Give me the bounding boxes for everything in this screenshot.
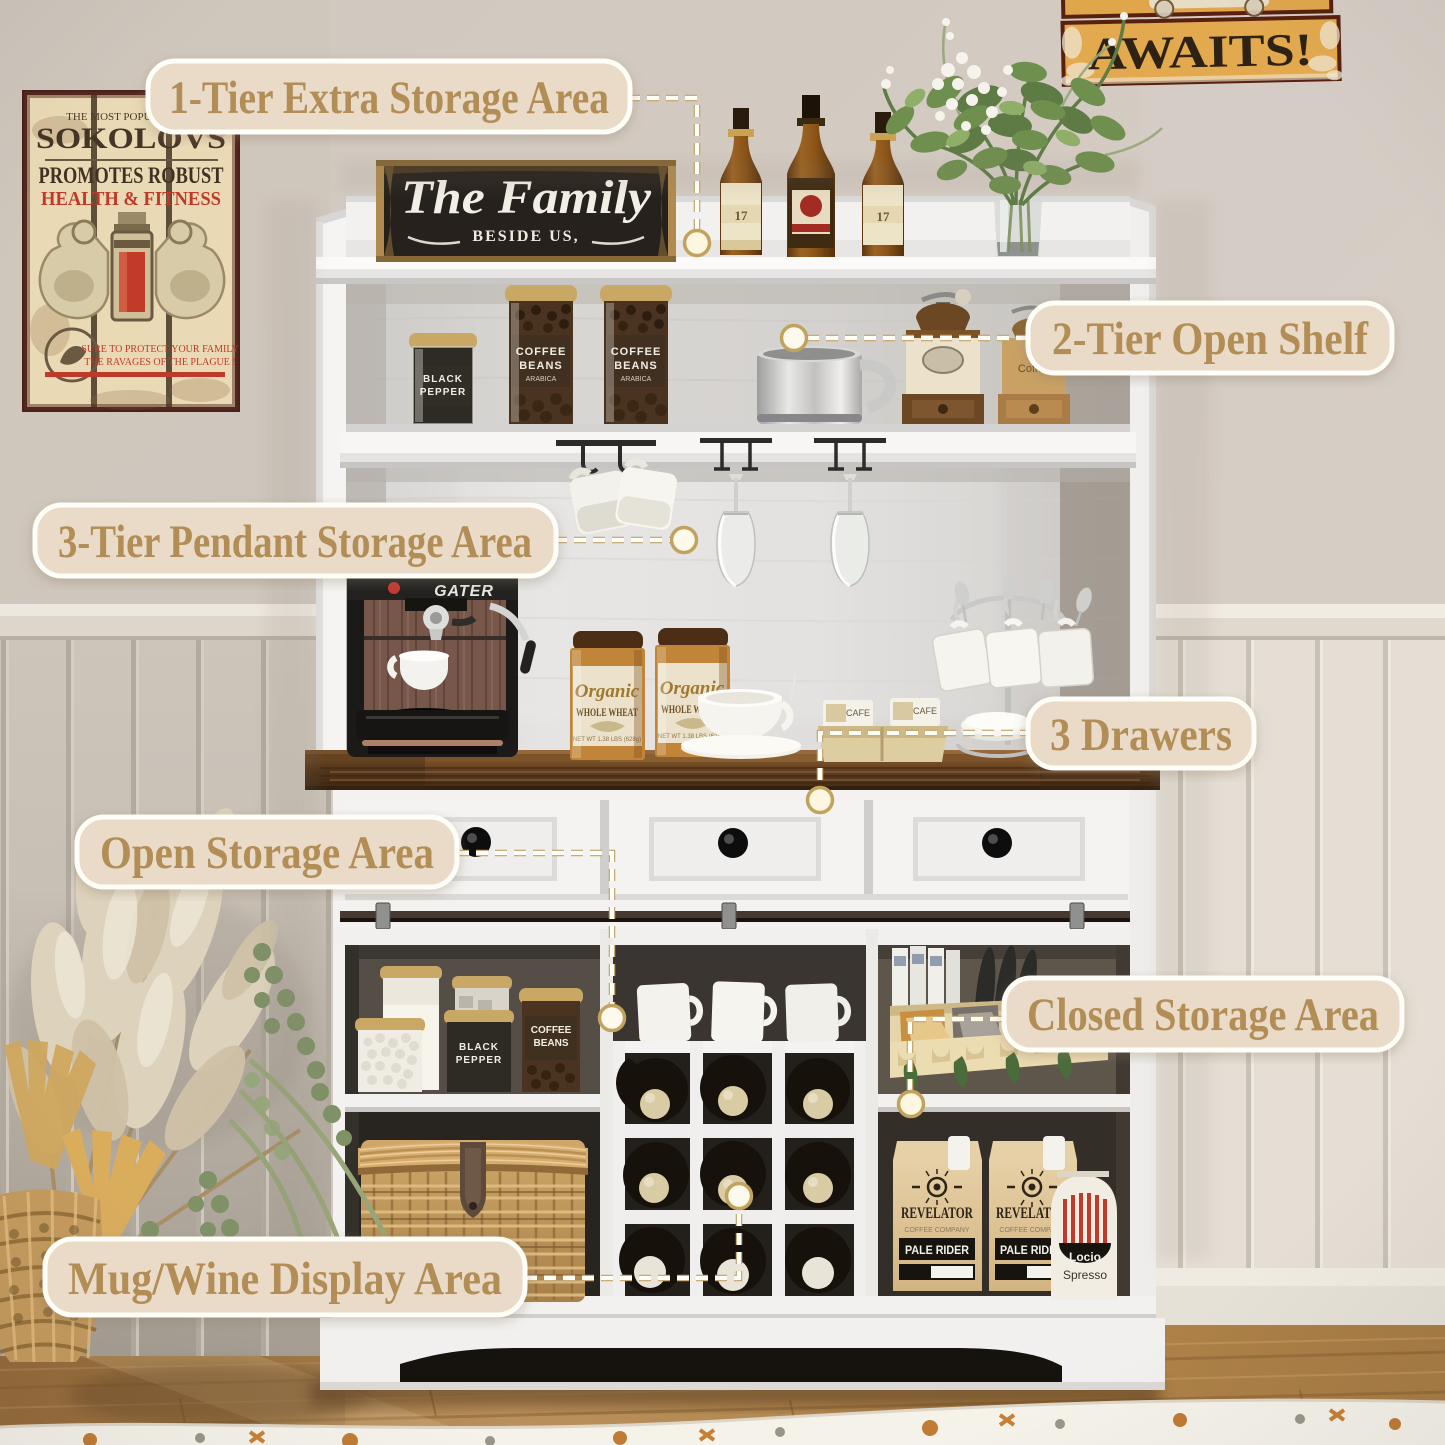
svg-text:Mug/Wine Display Area: Mug/Wine Display Area	[68, 1253, 502, 1305]
svg-text:Open Storage Area: Open Storage Area	[100, 827, 434, 879]
svg-text:2-Tier Open Shelf: 2-Tier Open Shelf	[1052, 313, 1369, 365]
svg-text:3 Drawers: 3 Drawers	[1050, 709, 1232, 761]
svg-text:1-Tier Extra Storage Area: 1-Tier Extra Storage Area	[169, 72, 609, 124]
svg-text:Closed Storage Area: Closed Storage Area	[1027, 989, 1379, 1041]
svg-text:3-Tier Pendant Storage Area: 3-Tier Pendant Storage Area	[58, 516, 532, 568]
